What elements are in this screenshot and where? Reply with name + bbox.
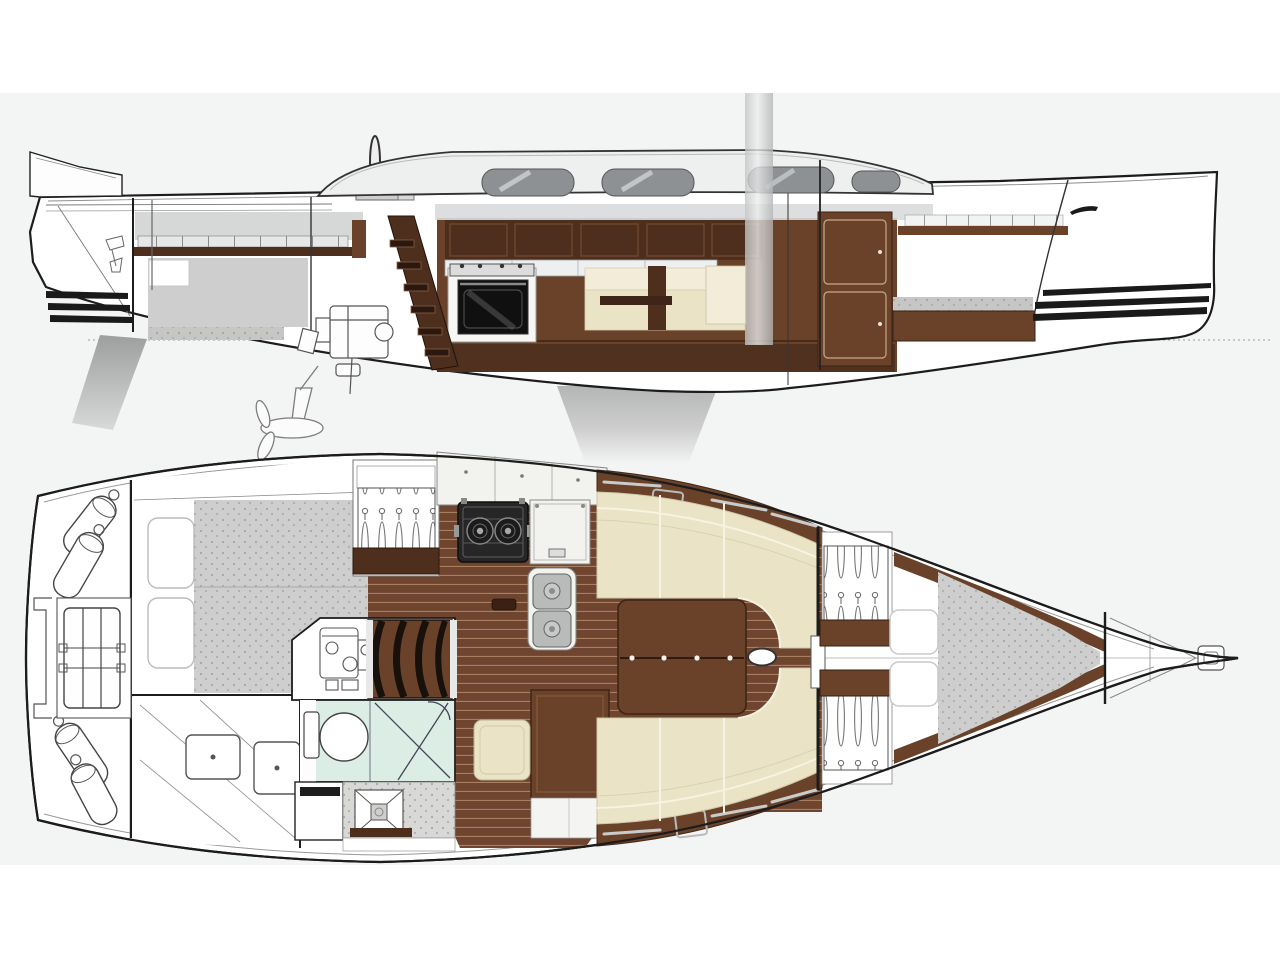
bow-fitting xyxy=(1198,646,1224,670)
cockpit-seat-beam xyxy=(133,247,361,256)
companionway-sill xyxy=(352,220,366,258)
galley-oven xyxy=(448,264,536,342)
yacht-ga-diagram xyxy=(0,0,1280,960)
wardrobe-shelf xyxy=(353,548,439,574)
locker-trim xyxy=(350,828,412,837)
wardrobe-hangers xyxy=(358,488,435,548)
overhead-lockers xyxy=(445,220,763,260)
locker-shelf-port xyxy=(820,620,894,646)
aft-berth-pillow-1 xyxy=(148,518,194,588)
aft-stowage-room xyxy=(132,696,300,848)
saloon-table-side xyxy=(600,296,672,305)
forward-bulkhead-doors xyxy=(818,212,892,366)
liferaft-locker xyxy=(57,598,131,718)
cockpit-bench-slats xyxy=(138,236,348,247)
sole-access-latch xyxy=(492,599,516,610)
aft-berth-pillow-2 xyxy=(148,598,194,668)
v-berth-pillow-2 xyxy=(890,662,938,706)
heads-compartment xyxy=(300,700,455,782)
worktop-latch xyxy=(549,549,565,557)
aft-berth-pillow-side xyxy=(149,260,189,286)
locker-shelf-stbd xyxy=(820,670,894,696)
chart-seat xyxy=(474,720,530,780)
stern-accent-stripes xyxy=(46,291,132,323)
nav-seat-back-side xyxy=(706,266,746,324)
companionway-steps-plan xyxy=(366,620,457,698)
locker-vent-slot xyxy=(300,787,340,796)
toilet-bowl xyxy=(320,713,368,761)
diagram-svg xyxy=(0,0,1280,960)
forward-shelf xyxy=(898,226,1068,235)
toilet-tank xyxy=(304,712,319,758)
forward-shelf-ticks xyxy=(905,215,1063,226)
hanging-locker-port xyxy=(824,546,888,620)
hanging-locker-stbd xyxy=(824,696,888,770)
galley-sink xyxy=(528,568,576,650)
galley-worktop xyxy=(530,500,590,564)
v-berth-base-side xyxy=(893,311,1035,341)
v-berth-pillow-1 xyxy=(890,610,938,654)
wardrobe xyxy=(353,460,439,576)
galley-stove xyxy=(454,498,532,562)
shower-drain-grate xyxy=(355,790,403,834)
mast-section xyxy=(748,649,776,666)
mast xyxy=(745,93,773,345)
wet-locker-area xyxy=(295,782,455,851)
